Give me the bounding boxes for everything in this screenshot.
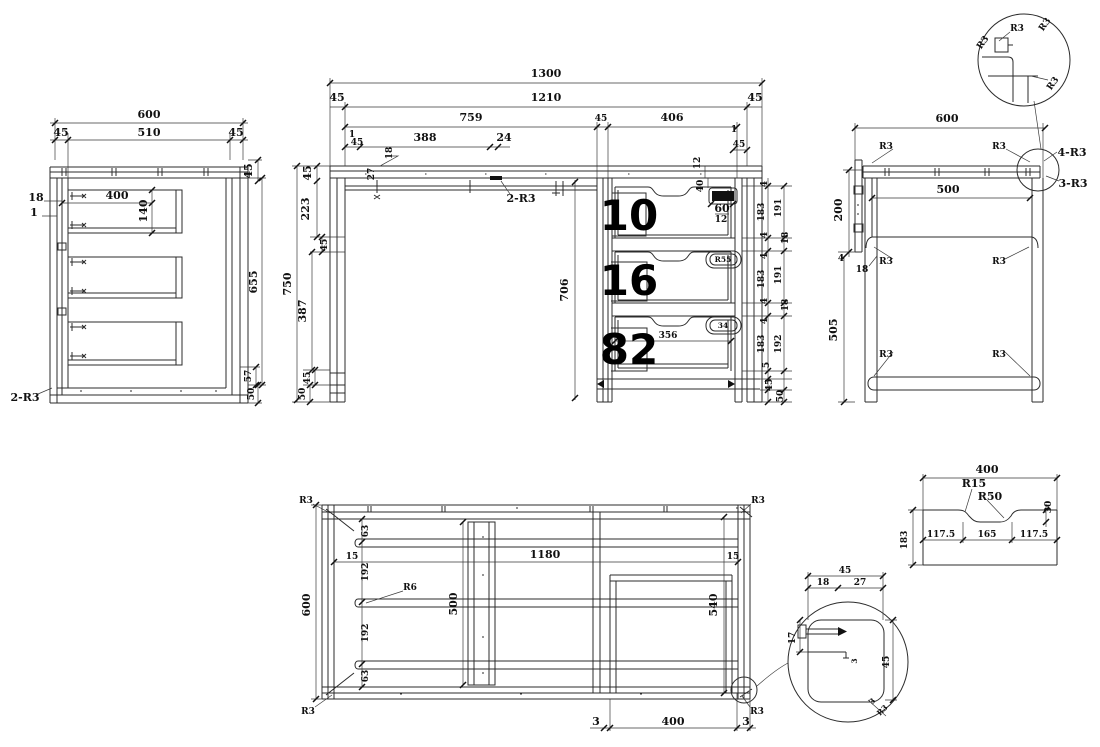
dim-label: 45 xyxy=(320,239,330,252)
dim-label: 15 xyxy=(727,552,740,562)
dim-label: 45 xyxy=(747,91,762,104)
dim-label: 45 xyxy=(882,656,892,669)
dim-label: 1210 xyxy=(531,91,562,104)
dim-label: 45 xyxy=(329,91,344,104)
radius-callout: 2-R3 xyxy=(10,391,39,404)
radius-callout: R3 xyxy=(1010,24,1024,34)
dim-label: 1180 xyxy=(530,548,561,561)
dim-label: 400 xyxy=(106,189,129,202)
front-view-dim-lines xyxy=(292,78,792,402)
dim-label: 12 xyxy=(693,157,703,170)
cad-drawing-page: 600 45 510 45 45 18 1 400 140 655 57 50 … xyxy=(0,0,1100,747)
dim-label: 1 xyxy=(30,206,38,219)
dim-label: 223 xyxy=(299,198,312,221)
dim-label: 18 xyxy=(28,191,44,204)
dim-label: 4 xyxy=(760,253,770,259)
dim-label: 500 xyxy=(937,183,960,196)
radius-callout: R3 xyxy=(301,707,315,717)
dim-label: 17 xyxy=(788,632,798,645)
dim-label: 183 xyxy=(757,203,767,222)
dim-label: 4 xyxy=(760,232,770,238)
drawer-number: 10 xyxy=(600,191,658,240)
dim-label: 356 xyxy=(659,331,678,341)
dim-label: 45 xyxy=(733,140,746,150)
dim-label: 600 xyxy=(936,112,959,125)
dim-label: 24 xyxy=(496,131,512,144)
dim-label: 192 xyxy=(361,563,371,582)
bottom-view-linework xyxy=(322,505,752,699)
radius-callout: R3 xyxy=(750,707,764,717)
dim-label: 15 xyxy=(346,552,359,562)
radius-callout: 2-R3 xyxy=(506,192,535,205)
dim-label: 27 xyxy=(854,578,867,588)
dim-label: 183 xyxy=(900,531,910,550)
detail-marker-circle xyxy=(1017,149,1059,191)
corner-detail-leaders xyxy=(999,32,1048,80)
dim-label: 18 xyxy=(781,299,791,312)
drawer-number: 82 xyxy=(600,325,658,374)
dim-label: 510 xyxy=(138,126,161,139)
corner-detail-linework xyxy=(982,38,1038,103)
dim-label: 40 xyxy=(696,180,706,193)
dim-label: 45 xyxy=(301,165,314,180)
foot-detail-view: 45 18 27 17 3 45 3 R3 xyxy=(788,566,908,722)
front-view-linework xyxy=(330,166,762,402)
dim-label: 30 xyxy=(1044,501,1054,514)
bottom-plan-view: R3 R3 R3 R3 600 63 192 192 63 15 1180 15… xyxy=(299,496,788,731)
radius-callout: R3 xyxy=(299,496,313,506)
radius-callout: R3 xyxy=(992,142,1006,152)
dim-label: 191 xyxy=(774,266,784,285)
dim-label: 655 xyxy=(247,271,260,294)
dim-label: 5 xyxy=(762,362,772,368)
radius-callout: R3 xyxy=(879,142,893,152)
radius-callout: R3 xyxy=(992,257,1006,267)
dim-label: 4 xyxy=(838,254,844,264)
dim-label: 3 xyxy=(867,696,877,706)
dim-label: 18 xyxy=(817,578,830,588)
dim-label: 45 xyxy=(303,372,313,385)
dim-label: 50 xyxy=(776,390,786,403)
dim-label: 45 xyxy=(595,114,608,124)
dim-label: 192 xyxy=(774,335,784,354)
dim-label: 4 xyxy=(760,298,770,304)
drawer-number: 16 xyxy=(600,256,658,305)
dim-label: 600 xyxy=(138,108,161,121)
dim-label: 18 xyxy=(385,147,395,160)
dim-label: 45 xyxy=(839,566,852,576)
dim-label: 117.5 xyxy=(927,530,955,540)
dim-label: 45 xyxy=(242,163,255,178)
radius-callout: R3 xyxy=(879,257,893,267)
radius-callout: R50 xyxy=(978,490,1003,503)
right-view-dim-lines xyxy=(838,101,1059,402)
bottom-view-ticks xyxy=(313,502,753,731)
radius-callout: 4-R3 xyxy=(1057,146,1086,159)
screw-tip xyxy=(838,627,847,636)
radius-callout: R3 xyxy=(875,703,889,717)
radius-callout: R3 xyxy=(975,34,991,51)
dim-label: 12 xyxy=(715,215,728,225)
front-view: 1300 45 1210 45 759 45 406 1 45 388 24 1… xyxy=(281,67,792,405)
dim-label: 117.5 xyxy=(1020,530,1048,540)
handle-label: 34 xyxy=(718,321,728,330)
dim-label: 759 xyxy=(460,111,483,124)
dim-label: 45 xyxy=(765,379,775,392)
dim-label: 140 xyxy=(137,199,150,222)
cad-drawing-canvas: 600 45 510 45 45 18 1 400 140 655 57 50 … xyxy=(0,0,1100,747)
dim-label: 4 xyxy=(760,181,770,187)
dim-label: 63 xyxy=(361,670,371,683)
foot-detail-ticks xyxy=(797,573,896,703)
stretcher-rail xyxy=(868,377,1040,390)
dim-label: 50 xyxy=(298,388,308,401)
dim-label: 600 xyxy=(300,593,313,616)
dim-label: 183 xyxy=(757,270,767,289)
dim-label: 45 xyxy=(351,138,364,148)
dim-label: 500 xyxy=(447,592,460,615)
dim-label: 750 xyxy=(281,272,294,295)
dim-label: 3 xyxy=(592,715,600,728)
drawer1-handle xyxy=(712,191,734,201)
bottom-view-dim-lines xyxy=(311,504,788,731)
dim-label: 4 xyxy=(760,318,770,324)
dim-label: 63 xyxy=(361,525,371,538)
dim-label: 165 xyxy=(978,530,997,540)
dim-label: 388 xyxy=(414,131,437,144)
radius-callout: R3 xyxy=(751,496,765,506)
radius-callout: R6 xyxy=(403,583,417,593)
foot-detail-dim-lines xyxy=(796,572,897,716)
dim-label: 18 xyxy=(781,232,791,245)
dim-label: 50 xyxy=(247,388,257,401)
dim-label: 406 xyxy=(661,111,684,124)
dim-label: 18 xyxy=(856,265,869,275)
dim-label: 540 xyxy=(707,593,720,616)
dim-label: 45 xyxy=(53,126,68,139)
radius-callout: R3 xyxy=(1037,16,1053,33)
dim-label: 45 xyxy=(228,126,243,139)
dim-label: 60 xyxy=(714,202,730,215)
dim-label: 57 xyxy=(244,370,254,383)
radius-callout: 3-R3 xyxy=(1058,177,1087,190)
groove-profile-view: 400 R15 R50 30 117.5 165 117.5 183 xyxy=(900,463,1060,568)
front-view-ticks xyxy=(294,80,787,405)
left-view-ticks xyxy=(52,120,265,406)
dim-label: 3 xyxy=(850,658,859,663)
dim-label: 706 xyxy=(558,278,571,301)
dim-label: 400 xyxy=(662,715,685,728)
radius-callout: R3 xyxy=(879,350,893,360)
leg-cross-section xyxy=(808,620,884,702)
dim-label: 183 xyxy=(757,335,767,354)
right-side-view: 600 500 R3 R3 R3 R3 R3 R3 4-R3 3-R3 200 … xyxy=(827,101,1088,405)
dim-label: 387 xyxy=(296,300,309,323)
dim-label: 191 xyxy=(774,199,784,218)
dim-label: 505 xyxy=(827,319,840,342)
dim-label: 1 xyxy=(731,125,737,135)
dim-label: 1300 xyxy=(531,67,562,80)
handle-label: R55 xyxy=(715,255,732,264)
left-side-view: 600 45 510 45 45 18 1 400 140 655 57 50 … xyxy=(10,108,266,406)
dim-label: 400 xyxy=(976,463,999,476)
dim-label: 200 xyxy=(832,198,845,221)
radius-callout: R3 xyxy=(992,350,1006,360)
radius-callout: R15 xyxy=(962,477,986,490)
dim-label: 27 xyxy=(367,168,377,181)
corner-detail-view: R3 R3 R3 R3 xyxy=(975,14,1070,106)
detail-circle xyxy=(978,14,1070,106)
dim-label: 192 xyxy=(361,624,371,643)
dim-label: 3 xyxy=(742,715,750,728)
